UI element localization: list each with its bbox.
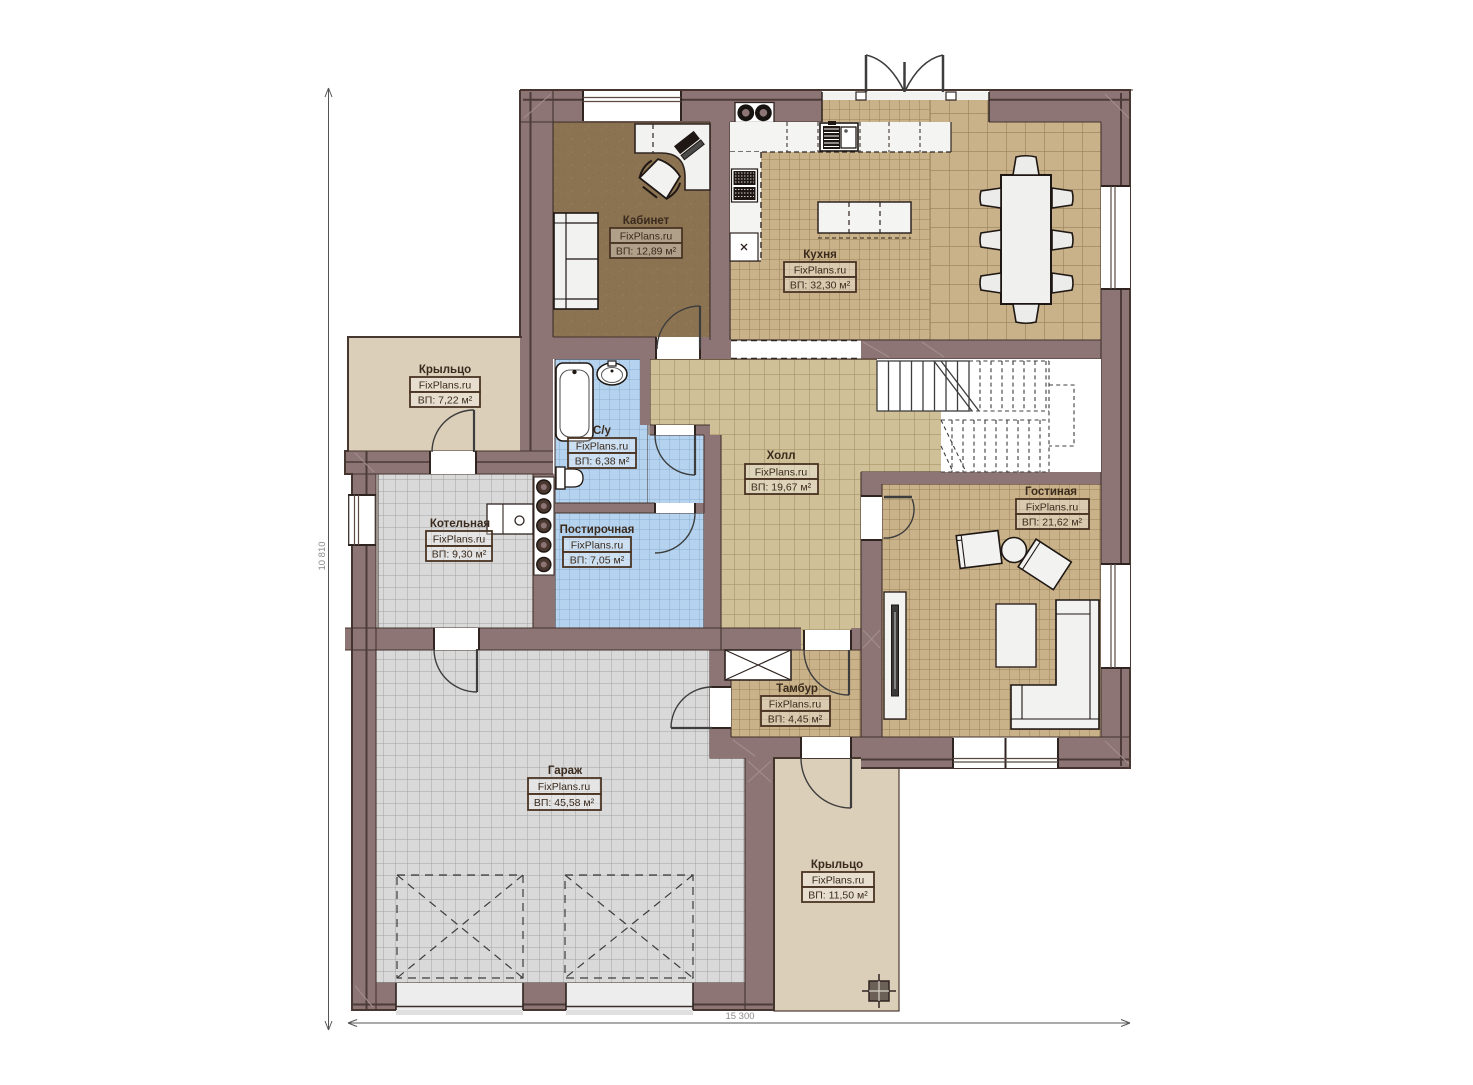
svg-text:С/у: С/у	[593, 425, 612, 437]
svg-text:15 300: 15 300	[725, 1011, 754, 1022]
svg-text:Тамбур: Тамбур	[776, 683, 818, 695]
svg-text:Кабинет: Кабинет	[623, 215, 670, 227]
svg-text:ВП: 19,67 м²: ВП: 19,67 м²	[751, 482, 812, 494]
svg-text:FixPlans.ru: FixPlans.ru	[755, 467, 808, 479]
svg-text:FixPlans.ru: FixPlans.ru	[571, 540, 624, 552]
svg-text:Крыльцо: Крыльцо	[811, 859, 863, 871]
svg-text:ВП: 7,22 м²: ВП: 7,22 м²	[418, 395, 473, 407]
svg-text:FixPlans.ru: FixPlans.ru	[620, 231, 673, 243]
svg-text:FixPlans.ru: FixPlans.ru	[812, 875, 865, 887]
svg-text:ВП: 32,30 м²: ВП: 32,30 м²	[790, 280, 851, 292]
svg-text:Котельная: Котельная	[430, 518, 490, 530]
svg-text:10 810: 10 810	[317, 541, 328, 570]
svg-text:ВП: 6,38 м²: ВП: 6,38 м²	[575, 456, 630, 468]
svg-text:ВП: 11,50 м²: ВП: 11,50 м²	[808, 890, 868, 902]
svg-text:ВП: 4,45 м²: ВП: 4,45 м²	[768, 714, 823, 726]
svg-text:FixPlans.ru: FixPlans.ru	[1026, 502, 1079, 514]
svg-text:ВП: 9,30 м²: ВП: 9,30 м²	[432, 549, 487, 561]
svg-text:ВП: 21,62 м²: ВП: 21,62 м²	[1022, 517, 1083, 529]
svg-text:FixPlans.ru: FixPlans.ru	[419, 380, 472, 392]
svg-text:Гараж: Гараж	[548, 765, 583, 777]
svg-text:ВП: 45,58 м²: ВП: 45,58 м²	[534, 797, 595, 809]
svg-text:FixPlans.ru: FixPlans.ru	[794, 265, 847, 277]
svg-text:Постирочная: Постирочная	[560, 524, 635, 536]
svg-text:ВП: 7,05 м²: ВП: 7,05 м²	[570, 555, 625, 567]
svg-text:Крыльцо: Крыльцо	[419, 364, 471, 376]
svg-text:Холл: Холл	[767, 450, 796, 462]
svg-text:FixPlans.ru: FixPlans.ru	[538, 781, 591, 793]
svg-text:Кухня: Кухня	[803, 249, 837, 261]
svg-text:FixPlans.ru: FixPlans.ru	[769, 699, 822, 711]
svg-text:FixPlans.ru: FixPlans.ru	[576, 441, 629, 453]
svg-text:FixPlans.ru: FixPlans.ru	[433, 534, 486, 546]
svg-text:Гостиная: Гостиная	[1025, 486, 1077, 498]
svg-text:ВП: 12,89 м²: ВП: 12,89 м²	[616, 246, 677, 258]
